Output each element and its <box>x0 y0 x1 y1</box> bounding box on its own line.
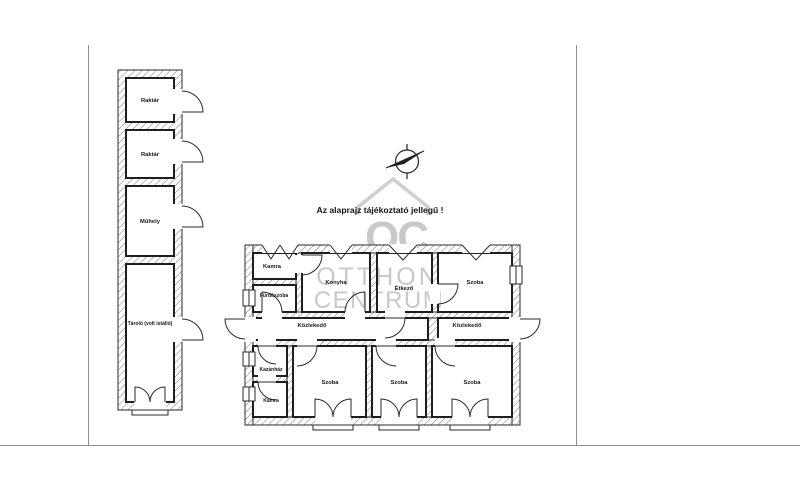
door-sill <box>132 410 168 415</box>
door-arc <box>297 346 317 366</box>
door-arc <box>376 346 396 366</box>
door-opening <box>172 204 183 229</box>
window-opening <box>389 244 417 253</box>
door-arc <box>182 319 203 340</box>
room-label: Kazánház <box>259 367 283 373</box>
room-label: Műhely <box>140 219 161 225</box>
room-label: Konyha <box>325 280 347 286</box>
door-arc <box>435 346 455 366</box>
room-tarolo <box>126 264 174 402</box>
room-label: Közlekedő <box>298 323 327 329</box>
door-opening <box>172 317 183 342</box>
room-label: Szoba <box>321 380 339 386</box>
door-opening <box>430 284 440 304</box>
window <box>243 387 255 401</box>
door-opening <box>172 89 183 114</box>
room-label: Raktár <box>141 98 160 104</box>
watermark-line2-text: CENTRUM <box>314 287 445 314</box>
door-opening <box>172 139 183 164</box>
room-label: Szoba <box>463 380 481 386</box>
room-label: Kamra <box>263 398 279 404</box>
door-arc <box>520 319 540 339</box>
door-arc <box>225 319 245 339</box>
floorplan-page: OC OTTHON CENTRUM Az alaprajz tájékoztat… <box>0 0 800 489</box>
room-label: Étkező <box>395 284 414 292</box>
double-door-arc <box>452 399 488 417</box>
door-arc <box>258 346 276 364</box>
room-label: Szoba <box>390 380 408 386</box>
north-arrow-icon <box>386 144 424 179</box>
door-arc <box>385 318 405 338</box>
door-opening <box>345 310 365 320</box>
wall-segment <box>370 253 377 312</box>
room-kozlekedo-right <box>438 318 512 340</box>
window-opening <box>462 244 490 253</box>
room-label: Szoba <box>466 280 484 286</box>
disclaimer-text: Az alaprajz tájékoztató jellegű ! <box>316 205 443 215</box>
door-opening <box>294 255 304 273</box>
double-door-arc <box>381 399 417 417</box>
door-arc <box>182 91 203 112</box>
wall-segment <box>428 318 438 340</box>
window <box>243 290 255 306</box>
door-opening <box>509 317 522 342</box>
room-label: Fürdőszoba <box>260 293 289 299</box>
floorplan-canvas: OC OTTHON CENTRUM Az alaprajz tájékoztat… <box>0 0 800 489</box>
door-arc <box>182 141 203 162</box>
door-sill <box>313 425 353 430</box>
door-sill <box>379 425 419 430</box>
door-arc <box>182 206 203 227</box>
window <box>243 352 255 366</box>
room-label: Raktár <box>141 152 160 158</box>
room-label: Tároló (volt istálló) <box>128 321 173 327</box>
door-sill <box>450 425 490 430</box>
room-label: Kamra <box>263 264 282 270</box>
outbuilding: Raktár Raktár Műhely Tároló (volt istáll… <box>118 70 203 415</box>
room-label: Közlekedő <box>453 323 482 329</box>
window <box>510 266 522 284</box>
door-opening <box>262 310 282 320</box>
door-opening <box>243 317 256 342</box>
double-door-arc <box>315 399 351 417</box>
